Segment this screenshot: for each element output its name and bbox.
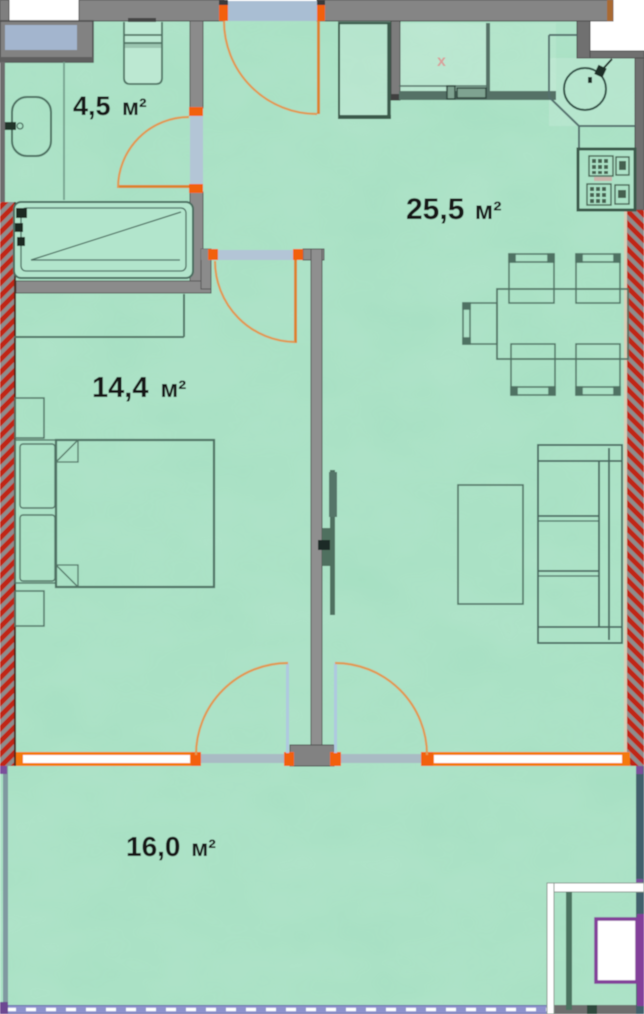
svg-text:x: x [437,53,446,70]
svg-text:25,5 м²: 25,5 м² [406,193,502,226]
svg-text:4,5 м²: 4,5 м² [73,91,147,121]
svg-text:14,4 м²: 14,4 м² [92,372,186,404]
svg-text:16,0 м²: 16,0 м² [126,831,216,862]
